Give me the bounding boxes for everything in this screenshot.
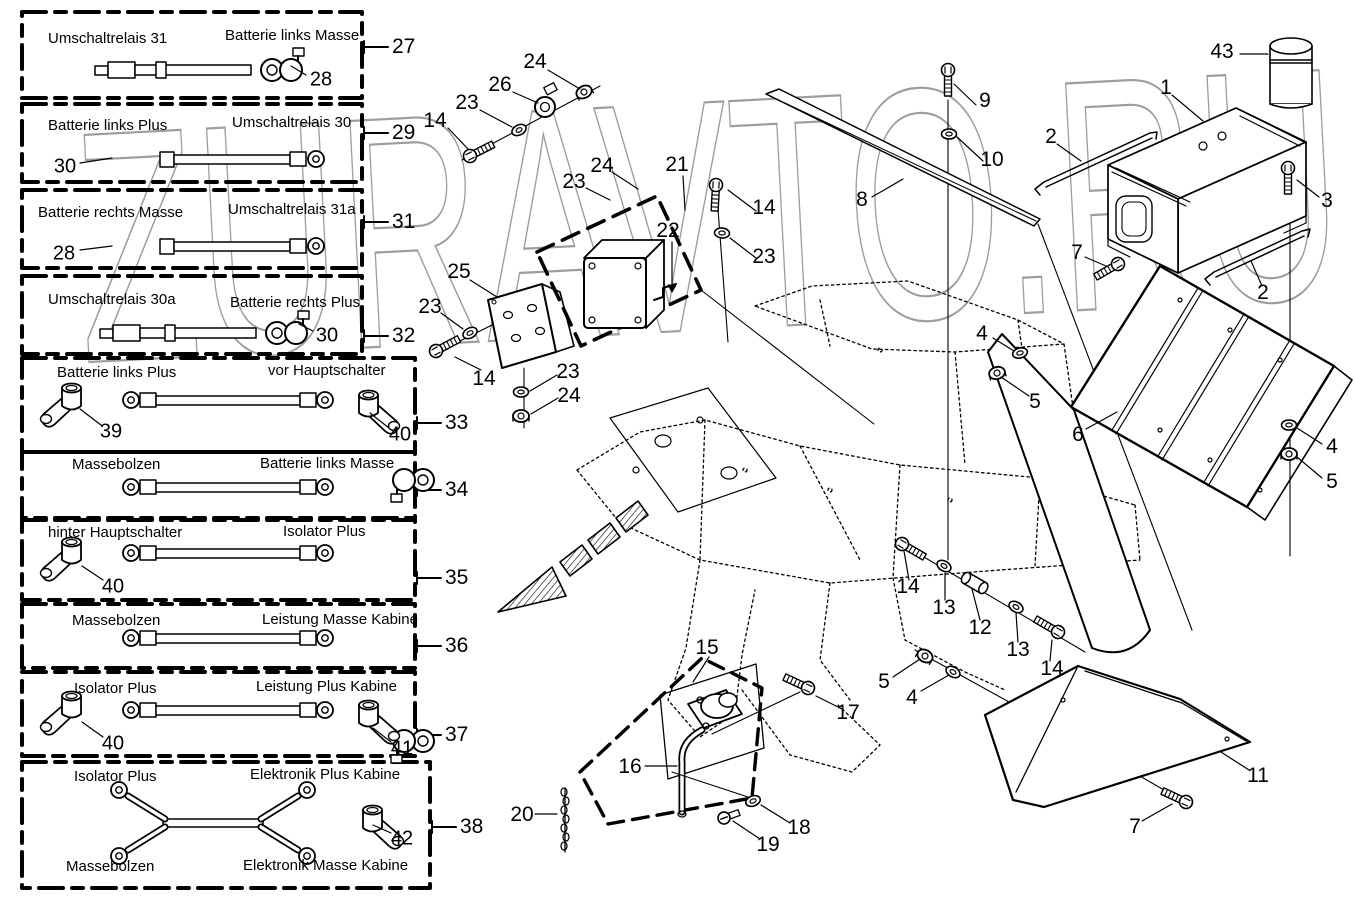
part-callout-4: 4: [1326, 435, 1338, 459]
part-callout-14: 14: [896, 575, 919, 599]
panel-ref-37: 37: [445, 723, 468, 747]
box-label: Massebolzen: [72, 612, 160, 629]
part-callout-16: 16: [618, 755, 641, 779]
part-callout-40: 40: [102, 733, 124, 756]
part-callout-24: 24: [557, 384, 580, 408]
part-callout-30: 30: [54, 156, 76, 179]
box-label: Batterie links Masse: [225, 27, 359, 44]
part-callout-9: 9: [979, 89, 991, 113]
part-callout-28: 28: [53, 243, 75, 266]
part-callout-10: 10: [980, 148, 1003, 172]
part-callout-13: 13: [932, 596, 955, 620]
part-callout-14: 14: [423, 109, 446, 133]
panel-ref-35: 35: [445, 566, 468, 590]
part-callout-2: 2: [1257, 281, 1269, 305]
part-callout-22: 22: [656, 219, 679, 243]
box-label: Umschaltrelais 31: [48, 30, 167, 47]
part-callout-40: 40: [102, 576, 124, 599]
part-callout-17: 17: [836, 701, 859, 725]
part-callout-14: 14: [472, 367, 495, 391]
box-label: Massebolzen: [66, 858, 154, 875]
text-layer: Umschaltrelais 31 Batterie links Masse B…: [0, 0, 1355, 903]
part-callout-21: 21: [665, 153, 688, 177]
part-callout-23: 23: [418, 295, 441, 319]
part-callout-23: 23: [556, 360, 579, 384]
part-callout-24: 24: [590, 154, 613, 178]
parts-diagram-page: { "watermark": { "text": "ZURAVTO.RU" },…: [0, 0, 1355, 903]
part-callout-43: 43: [1210, 40, 1233, 64]
panel-ref-34: 34: [445, 478, 468, 502]
part-callout-8: 8: [856, 188, 868, 212]
part-callout-28: 28: [310, 69, 332, 92]
panel-ref-31: 31: [392, 210, 415, 234]
part-callout-7: 7: [1071, 241, 1083, 265]
part-callout-23: 23: [562, 170, 585, 194]
box-label: Umschaltrelais 30: [232, 114, 351, 131]
box-label: Umschaltrelais 30a: [48, 291, 176, 308]
part-callout-5: 5: [1326, 470, 1338, 494]
part-callout-39: 39: [100, 421, 122, 444]
part-callout-20: 20: [510, 803, 533, 827]
panel-ref-36: 36: [445, 634, 468, 658]
part-callout-5: 5: [878, 670, 890, 694]
part-callout-3: 3: [1321, 189, 1333, 213]
panel-ref-38: 38: [460, 815, 483, 839]
panel-ref-32: 32: [392, 324, 415, 348]
part-callout-13: 13: [1006, 638, 1029, 662]
part-callout-25: 25: [447, 260, 470, 284]
box-label: vor Hauptschalter: [268, 362, 386, 379]
panel-ref-33: 33: [445, 411, 468, 435]
part-callout-5: 5: [1029, 390, 1041, 414]
part-callout-23: 23: [752, 245, 775, 269]
box-label: Batterie links Plus: [48, 117, 167, 134]
box-label: Isolator Plus: [74, 768, 157, 785]
box-label: Isolator Plus: [283, 523, 366, 540]
box-label: Batterie links Masse: [260, 455, 394, 472]
part-callout-23: 23: [455, 91, 478, 115]
part-callout-19: 19: [756, 833, 779, 857]
part-callout-4: 4: [976, 322, 988, 346]
part-callout-30: 30: [316, 325, 338, 348]
part-callout-18: 18: [787, 816, 810, 840]
part-callout-14: 14: [1040, 657, 1063, 681]
box-label: Elektronik Masse Kabine: [243, 857, 408, 874]
part-callout-15: 15: [695, 636, 718, 660]
box-label: Massebolzen: [72, 456, 160, 473]
box-label: Batterie rechts Masse: [38, 204, 183, 221]
part-callout-2: 2: [1045, 125, 1057, 149]
part-callout-7: 7: [1129, 815, 1141, 839]
box-label: Isolator Plus: [74, 680, 157, 697]
box-label: Batterie links Plus: [57, 364, 176, 381]
part-callout-12: 12: [968, 616, 991, 640]
part-callout-11: 11: [1247, 764, 1269, 788]
box-label: Umschaltrelais 31a: [228, 201, 356, 218]
box-label: Leistung Plus Kabine: [256, 678, 397, 695]
part-callout-6: 6: [1072, 423, 1084, 447]
part-callout-24: 24: [523, 50, 546, 74]
part-callout-41: 41: [391, 738, 413, 761]
part-callout-40: 40: [389, 424, 411, 447]
box-label: Leistung Masse Kabine: [262, 611, 418, 628]
box-label: hinter Hauptschalter: [48, 524, 182, 541]
part-callout-42: 42: [391, 828, 413, 851]
box-label: Batterie rechts Plus: [230, 294, 360, 311]
part-callout-14: 14: [752, 196, 775, 220]
box-label: Elektronik Plus Kabine: [250, 766, 400, 783]
panel-ref-27: 27: [392, 35, 415, 59]
part-callout-4: 4: [906, 686, 918, 710]
part-callout-26: 26: [488, 73, 511, 97]
panel-ref-29: 29: [392, 121, 415, 145]
part-callout-1: 1: [1160, 76, 1172, 100]
